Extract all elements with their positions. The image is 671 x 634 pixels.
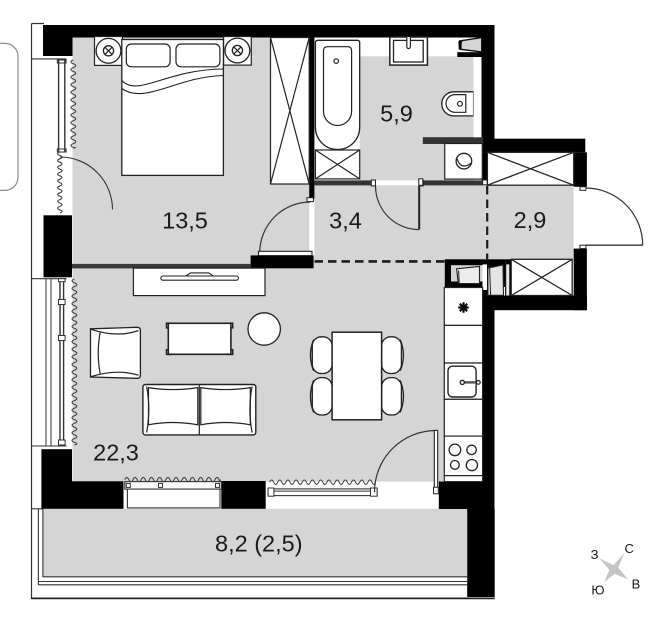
svg-text:З: З (591, 547, 599, 562)
svg-text:8,2 (2,5): 8,2 (2,5) (215, 530, 303, 556)
svg-text:Ю: Ю (591, 583, 604, 598)
svg-text:3,4: 3,4 (329, 208, 362, 234)
svg-text:С: С (625, 541, 634, 556)
svg-text:22,3: 22,3 (93, 439, 139, 465)
svg-text:В: В (632, 577, 641, 592)
svg-text:2,9: 2,9 (514, 207, 547, 233)
svg-text:13,5: 13,5 (162, 208, 208, 234)
svg-text:5,9: 5,9 (380, 100, 413, 126)
